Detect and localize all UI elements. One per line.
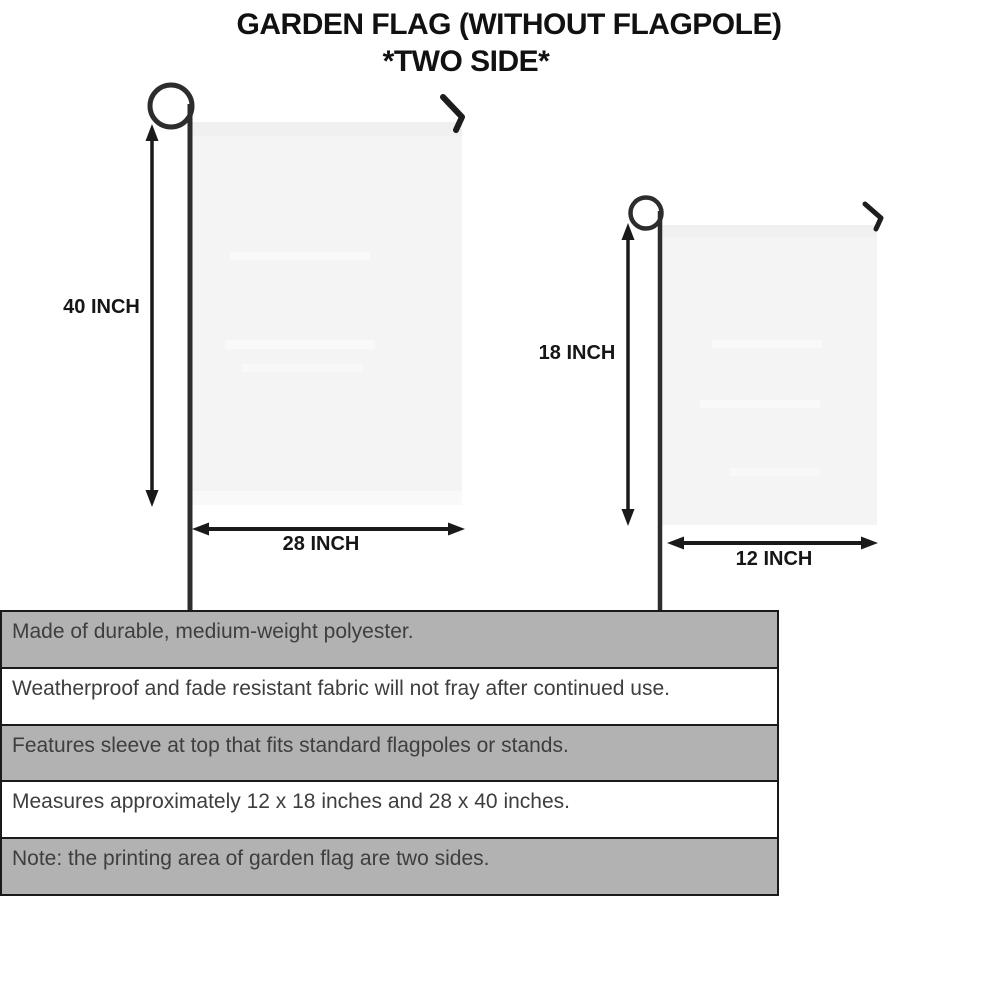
large-flag-sleeve — [192, 122, 462, 136]
product-specs-table: Made of durable, medium-weight polyester… — [0, 610, 779, 896]
large-flag-canvas — [192, 122, 462, 505]
fabric-fold — [242, 364, 362, 372]
fabric-fold — [230, 252, 370, 260]
fabric-fold — [730, 468, 820, 476]
small-height-arrow — [622, 223, 635, 526]
spec-row-note: Note: the printing area of garden flag a… — [2, 837, 777, 894]
fabric-fold — [225, 340, 375, 349]
garden-flag-infographic: GARDEN FLAG (WITHOUT FLAGPOLE) *TWO SIDE… — [0, 0, 1000, 1000]
spec-row-sleeve: Features sleeve at top that fits standar… — [2, 724, 777, 781]
large-flag-diagram — [146, 85, 466, 610]
spec-row-weatherproof: Weatherproof and fade resistant fabric w… — [2, 667, 777, 724]
spec-row-measurements: Measures approximately 12 x 18 inches an… — [2, 780, 777, 837]
large-flagpole-loop-icon — [150, 85, 192, 127]
fabric-fold — [700, 400, 820, 408]
fabric-fold — [712, 340, 822, 348]
large-flag-width-label: 28 INCH — [248, 533, 394, 556]
small-flag-sleeve — [662, 225, 877, 237]
small-flag-height-label: 18 INCH — [514, 342, 640, 365]
small-flagpole-loop-icon — [631, 198, 662, 229]
fabric-fold — [192, 491, 462, 505]
small-flag-canvas — [662, 225, 877, 525]
large-flag-height-label: 40 INCH — [39, 296, 164, 319]
small-flag-width-label: 12 INCH — [708, 548, 840, 571]
spec-row-material: Made of durable, medium-weight polyester… — [2, 612, 777, 667]
